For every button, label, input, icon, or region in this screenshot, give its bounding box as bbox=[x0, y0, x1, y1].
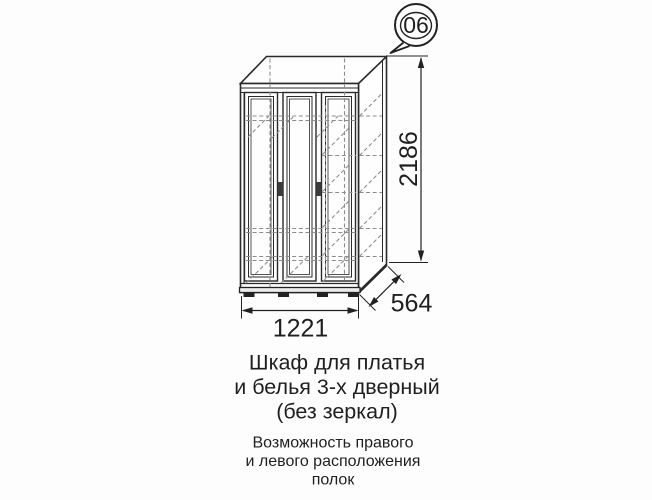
product-title: Шкаф для платья и белья 3-х дверный (без… bbox=[234, 351, 439, 424]
wardrobe-front-face bbox=[241, 84, 359, 293]
door-handle-right bbox=[316, 182, 321, 196]
title-line-1: Шкаф для платья bbox=[249, 351, 425, 375]
note-line-3: полок bbox=[312, 472, 356, 489]
arrowhead-right bbox=[348, 307, 359, 313]
wardrobe-technical-drawing: 06 bbox=[0, 0, 652, 500]
door-handle-left bbox=[278, 182, 283, 196]
height-dimension: 2186 bbox=[388, 56, 428, 263]
height-value: 2186 bbox=[395, 131, 423, 187]
depth-value: 564 bbox=[391, 290, 433, 318]
product-note: Возможность правого и левого расположени… bbox=[246, 435, 421, 489]
title-line-2: и белья 3-х дверный bbox=[234, 375, 439, 399]
arrowhead-left bbox=[242, 307, 253, 313]
width-value: 1221 bbox=[273, 315, 329, 343]
item-number: 06 bbox=[403, 12, 429, 38]
note-line-1: Возможность правого bbox=[252, 435, 413, 452]
foot bbox=[278, 293, 289, 298]
arrowhead-up bbox=[418, 57, 424, 68]
foot bbox=[348, 293, 359, 298]
note-line-2: и левого расположения bbox=[246, 453, 421, 470]
plinth bbox=[240, 288, 361, 293]
arrowhead-down bbox=[418, 251, 424, 262]
foot bbox=[244, 293, 255, 298]
foot bbox=[317, 293, 328, 298]
title-line-3: (без зеркал) bbox=[276, 400, 398, 424]
catalog-page: 06 bbox=[0, 0, 652, 500]
item-number-badge: 06 bbox=[391, 4, 438, 53]
width-dimension: 1221 bbox=[242, 296, 359, 343]
